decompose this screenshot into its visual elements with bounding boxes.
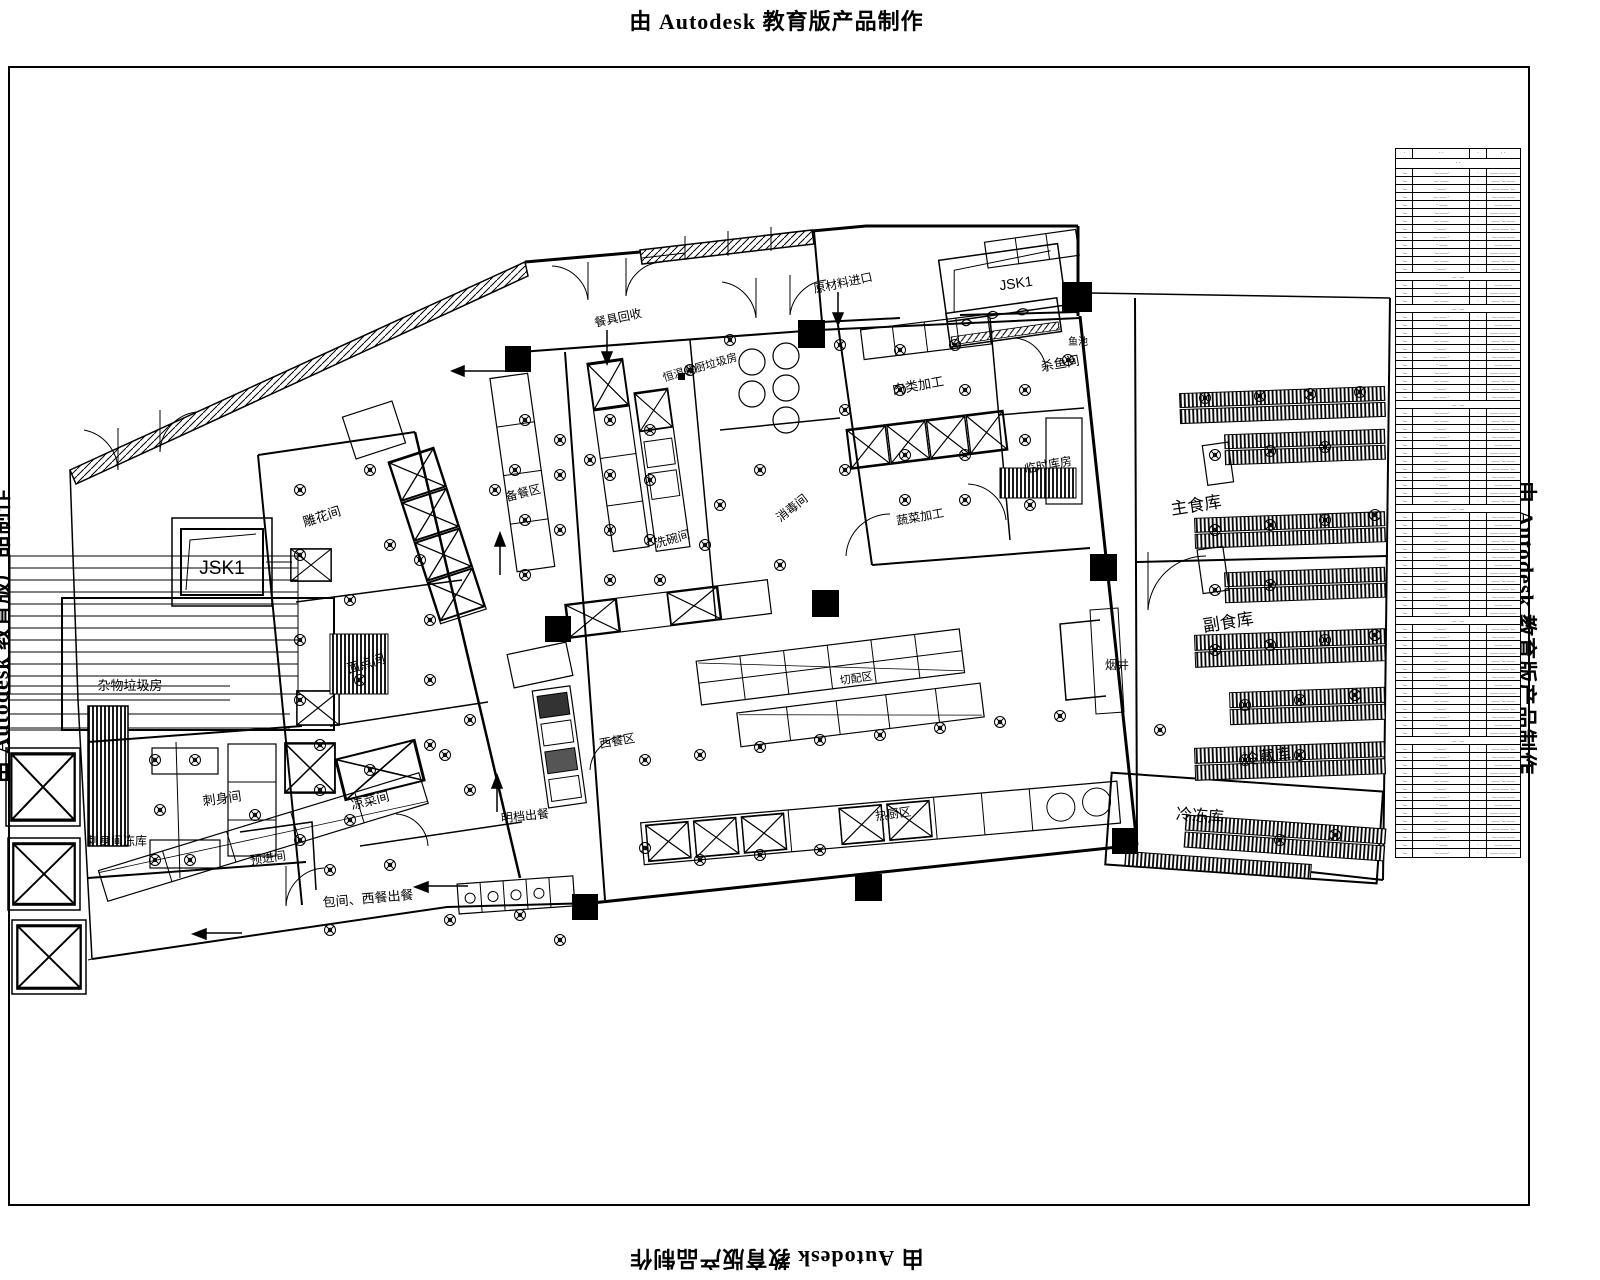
table-cell: —— —— —— xyxy=(1487,489,1520,496)
table-cell: —— —— —— xyxy=(1487,809,1520,816)
table-row: ·—·——··—— —— ·— xyxy=(1396,425,1520,433)
table-cell: —— —— ·— xyxy=(1487,545,1520,552)
table-row: ·—— ·——·—— ·— —— xyxy=(1396,577,1520,585)
table-cell: ·— xyxy=(1396,777,1413,784)
table-cell: — —— · xyxy=(1413,313,1470,320)
table-cell: ·— xyxy=(1396,481,1413,488)
table-cell: —— —— ·— xyxy=(1487,665,1520,672)
table-cell: ·— ——· xyxy=(1413,209,1470,216)
table-cell: ·— —— —— xyxy=(1487,553,1520,560)
table-cell: —— ·— —— xyxy=(1487,697,1520,704)
table-cell: — ·—— xyxy=(1413,577,1470,584)
table-cell: ·— xyxy=(1396,833,1413,840)
table-cell: —— ·— —— xyxy=(1487,217,1520,224)
table-cell: · xyxy=(1470,745,1486,752)
table-cell: — ·—— xyxy=(1413,257,1470,264)
table-row: ·—·· ——·—— —— xyxy=(1396,321,1520,329)
table-cell: ·— —— —— xyxy=(1487,233,1520,240)
table-cell: ·— xyxy=(1396,417,1413,424)
table-cell: · xyxy=(1470,225,1486,232)
table-cell: ·— ——· xyxy=(1413,249,1470,256)
table-cell: — ·—— xyxy=(1413,177,1470,184)
table-cell: —— —— —— xyxy=(1487,769,1520,776)
table-cell: ·— xyxy=(1396,353,1413,360)
table-row: ·—— —— ···— —— —— xyxy=(1396,593,1520,601)
table-row: ·—·— ——··—— —— —— xyxy=(1396,249,1520,257)
equipment-schedule-table: ·· ··· ·· ··—·— ——··—— —— ——·—— ·——·—— ·… xyxy=(1395,148,1521,858)
table-cell: —— —— ·— xyxy=(1487,825,1520,832)
table-row: ·—·· ——·—— —— xyxy=(1396,521,1520,529)
table-row: ·—— —— ···— —— —— xyxy=(1396,633,1520,641)
table-cell: —— —— xyxy=(1487,481,1520,488)
table-cell: ·— xyxy=(1396,193,1413,200)
table-cell: —— ·— —— xyxy=(1487,657,1520,664)
table-cell: · xyxy=(1470,777,1486,784)
table-row: ·—— ·——·—— ·— —— xyxy=(1396,177,1520,185)
table-cell: —— —— —— xyxy=(1487,329,1520,336)
table-row: ·—·— ——··—— —— —— xyxy=(1396,529,1520,537)
table-row: ·—·· ——·—— —— xyxy=(1396,641,1520,649)
table-cell: · xyxy=(1470,353,1486,360)
table-row: ·—·— ——··—— —— —— xyxy=(1396,649,1520,657)
table-cell: —— —— xyxy=(1487,601,1520,608)
table-cell: —— ·— —— xyxy=(1487,537,1520,544)
table-cell: ·— xyxy=(1396,337,1413,344)
table-cell: — ·—— xyxy=(1413,697,1470,704)
table-row: ·—— ·——·—— ·— —— xyxy=(1396,817,1520,825)
table-cell: · xyxy=(1470,649,1486,656)
table-cell: ·— ——· xyxy=(1413,649,1470,656)
table-cell: · xyxy=(1470,177,1486,184)
label-jsk1-left: JSK1 xyxy=(199,558,244,579)
table-cell: —— —— ·— xyxy=(1487,465,1520,472)
table-cell: —— —— —— xyxy=(1487,529,1520,536)
table-row: ·—— —— ···— —— —— xyxy=(1396,833,1520,841)
table-cell: · xyxy=(1470,817,1486,824)
table-cell: —— —— ·— xyxy=(1487,385,1520,392)
table-row: ·—·· ——·—— —— xyxy=(1396,241,1520,249)
table-cell: ·— —— —— xyxy=(1487,713,1520,720)
table-cell: ·— xyxy=(1396,625,1413,632)
table-cell: —— —— xyxy=(1487,681,1520,688)
table-row: ·—·· ——·—— —— xyxy=(1396,441,1520,449)
table-cell: · xyxy=(1470,473,1486,480)
table-cell: ·— xyxy=(1396,489,1413,496)
table-cell: — ·—— xyxy=(1413,337,1470,344)
table-cell: ·— xyxy=(1396,393,1413,400)
table-cell: · xyxy=(1470,281,1486,288)
table-cell: —— —— xyxy=(1487,281,1520,288)
table-cell: ·— —— —— xyxy=(1487,673,1520,680)
table-row: ·—— —— ···— —— —— xyxy=(1396,233,1520,241)
table-cell: ·——· xyxy=(1413,545,1470,552)
table-cell: —— —— ·— xyxy=(1487,785,1520,792)
table-cell: —— —— xyxy=(1487,241,1520,248)
table-cell: —— —— xyxy=(1487,841,1520,848)
table-cell: · xyxy=(1470,529,1486,536)
table-row: ·—— ·——·—— ·— —— xyxy=(1396,297,1520,305)
table-cell: — —— · xyxy=(1413,513,1470,520)
table-cell: —— —— ·— xyxy=(1487,745,1520,752)
table-cell: — —— · xyxy=(1413,753,1470,760)
table-cell: ·— xyxy=(1396,665,1413,672)
table-cell: · xyxy=(1470,321,1486,328)
table-cell: · xyxy=(1470,665,1486,672)
table-cell: —— —— —— xyxy=(1487,289,1520,296)
table-cell: · xyxy=(1470,681,1486,688)
table-cell: —— ·— —— xyxy=(1487,377,1520,384)
table-cell: ·· —— xyxy=(1413,641,1470,648)
room-label-yanjing: 烟井 xyxy=(1105,658,1129,672)
table-cell: —— ·— —— xyxy=(1487,417,1520,424)
table-cell: ·— xyxy=(1396,849,1413,857)
table-cell: ·— xyxy=(1396,257,1413,264)
table-cell: · xyxy=(1470,433,1486,440)
table-cell: ·— —— —— xyxy=(1487,833,1520,840)
room-label-xican: 西餐区 xyxy=(598,730,636,751)
table-cell: —— —— xyxy=(1487,521,1520,528)
table-row: ·—·——··—— —— ·— xyxy=(1396,785,1520,793)
table-row: ·—— —— ···— —— —— xyxy=(1396,513,1520,521)
table-cell: — ·—— xyxy=(1413,297,1470,304)
table-cell: —— —— ·— xyxy=(1487,585,1520,592)
table-cell: · xyxy=(1470,369,1486,376)
table-section-row: — · — xyxy=(1396,505,1520,513)
door-arcs xyxy=(84,258,1206,906)
table-cell: ·——· xyxy=(1413,185,1470,192)
table-cell: · xyxy=(1470,521,1486,528)
table-cell: ·— xyxy=(1396,449,1413,456)
table-row: ·—— ·——·—— ·— —— xyxy=(1396,457,1520,465)
table-cell: —— —— xyxy=(1487,561,1520,568)
table-cell: ·— ——· xyxy=(1413,689,1470,696)
table-cell: ·— xyxy=(1396,577,1413,584)
room-label-zawu: 杂物垃圾房 xyxy=(97,678,162,693)
table-cell: —— —— ·— xyxy=(1487,625,1520,632)
table-row: ·—·· ——·—— —— xyxy=(1396,361,1520,369)
room-label-lengdong: 冷冻库 xyxy=(1175,805,1224,826)
table-cell: · xyxy=(1470,577,1486,584)
table-row: ·—— —— ···— —— —— xyxy=(1396,793,1520,801)
room-label-beican: 备餐区 xyxy=(504,481,543,504)
table-cell: ·— xyxy=(1396,473,1413,480)
label-baojian: 包间、西餐出餐 xyxy=(322,887,414,910)
table-cell: —— ·— —— xyxy=(1487,177,1520,184)
table-cell: — —— · xyxy=(1413,473,1470,480)
table-cell: · · xyxy=(1487,149,1520,158)
table-cell: — —— · xyxy=(1413,553,1470,560)
table-row: ·—·· ——·—— —— xyxy=(1396,561,1520,569)
table-cell: — —— · xyxy=(1413,673,1470,680)
table-cell: · xyxy=(1470,537,1486,544)
table-cell: ·— —— —— xyxy=(1487,793,1520,800)
table-cell: —— —— ·— xyxy=(1487,265,1520,272)
table-cell: —— ·— —— xyxy=(1487,817,1520,824)
table-row: ·—— ·——·—— ·— —— xyxy=(1396,537,1520,545)
table-cell: ·— xyxy=(1396,521,1413,528)
table-cell: · xyxy=(1470,625,1486,632)
table-cell: ·— xyxy=(1396,593,1413,600)
table-cell: ·——· xyxy=(1413,665,1470,672)
table-cell: · xyxy=(1470,457,1486,464)
table-cell: —— —— —— xyxy=(1487,849,1520,857)
table-cell: ·——· xyxy=(1413,745,1470,752)
table-cell: ·· —— xyxy=(1413,201,1470,208)
table-cell: — ·—— xyxy=(1413,657,1470,664)
table-cell: —— —— ·— xyxy=(1487,225,1520,232)
table-cell: · xyxy=(1470,705,1486,712)
table-cell: ·— xyxy=(1396,177,1413,184)
table-row: ·—·· ——·—— —— xyxy=(1396,761,1520,769)
table-cell: ·· —— xyxy=(1413,841,1470,848)
table-row: ·—— —— ···— —— —— xyxy=(1396,193,1520,201)
table-cell: —— ·— —— xyxy=(1487,457,1520,464)
table-cell: — ·—— xyxy=(1413,377,1470,384)
table-cell: · xyxy=(1470,585,1486,592)
table-cell: — ·—— xyxy=(1413,457,1470,464)
table-cell: · xyxy=(1470,289,1486,296)
table-row: ·—— —— ···— —— —— xyxy=(1396,313,1520,321)
table-section-row: — · — xyxy=(1396,401,1520,409)
table-cell: ·· —— xyxy=(1413,761,1470,768)
table-row: ·—·— ——··—— —— —— xyxy=(1396,169,1520,177)
table-cell: · xyxy=(1470,673,1486,680)
table-cell: ·— xyxy=(1396,753,1413,760)
table-row: ·—·— ——··—— —— —— xyxy=(1396,609,1520,617)
table-cell: ·— xyxy=(1396,705,1413,712)
table-cell: · xyxy=(1470,313,1486,320)
table-cell: ·· —— xyxy=(1413,361,1470,368)
table-cell: ·— —— —— xyxy=(1487,473,1520,480)
table-row: ·—— ·——·—— ·— —— xyxy=(1396,337,1520,345)
table-cell: · xyxy=(1470,721,1486,728)
table-cell: —— —— xyxy=(1487,801,1520,808)
table-row: ·—— ·——·—— ·— —— xyxy=(1396,697,1520,705)
table-cell: — ·—— xyxy=(1413,217,1470,224)
table-cell: ·— xyxy=(1396,457,1413,464)
table-row: ·—·——··—— —— ·— xyxy=(1396,465,1520,473)
table-cell: · xyxy=(1470,417,1486,424)
table-cell: —— —— ·— xyxy=(1487,185,1520,192)
table-row: ·—— ·——·—— ·— —— xyxy=(1396,217,1520,225)
table-row: ·—·— ——··—— —— —— xyxy=(1396,849,1520,857)
table-cell: —— —— —— xyxy=(1487,689,1520,696)
table-cell: ·— xyxy=(1396,321,1413,328)
table-cell: ·— xyxy=(1396,313,1413,320)
table-row: ·—·· ——·—— —— xyxy=(1396,481,1520,489)
table-cell: —— —— —— xyxy=(1487,209,1520,216)
room-label-shucai: 蔬菜加工 xyxy=(895,506,945,528)
table-cell: — —— · xyxy=(1413,793,1470,800)
table-cell: · xyxy=(1470,465,1486,472)
table-cell: ·——· xyxy=(1413,465,1470,472)
table-cell: — —— · xyxy=(1413,833,1470,840)
table-cell: —— ·— —— xyxy=(1487,497,1520,504)
table-cell: · xyxy=(1470,785,1486,792)
table-cell: · xyxy=(1470,561,1486,568)
table-cell: ·— xyxy=(1396,329,1413,336)
table-cell: ·——· xyxy=(1413,785,1470,792)
table-row: ·—·— ——··—— —— —— xyxy=(1396,689,1520,697)
table-cell: · xyxy=(1470,257,1486,264)
table-cell: ·· —— xyxy=(1413,241,1470,248)
table-cell: — ·—— xyxy=(1413,777,1470,784)
table-row: ·—·——··—— —— ·— xyxy=(1396,185,1520,193)
table-cell: · xyxy=(1470,393,1486,400)
table-cell: ·— ——· xyxy=(1413,409,1470,416)
table-cell: · xyxy=(1470,753,1486,760)
table-row: ·—·——··—— —— ·— xyxy=(1396,665,1520,673)
table-cell: ·· —— xyxy=(1413,601,1470,608)
table-cell: · xyxy=(1470,489,1486,496)
table-cell: ·— —— —— xyxy=(1487,393,1520,400)
table-cell: · xyxy=(1470,729,1486,736)
table-cell: —— ·— —— xyxy=(1487,777,1520,784)
table-cell: · xyxy=(1470,377,1486,384)
table-cell: —— —— xyxy=(1487,641,1520,648)
table-row: ·—— —— ···— —— —— xyxy=(1396,713,1520,721)
label-mingdang: 明档出餐 xyxy=(500,806,549,826)
table-cell: ·— xyxy=(1396,841,1413,848)
table-row: ·—·——··—— —— ·— xyxy=(1396,585,1520,593)
table-cell: · xyxy=(1470,809,1486,816)
room-label-cishen: 刺身间 xyxy=(202,788,243,808)
table-row: ·—·— ——··—— —— —— xyxy=(1396,369,1520,377)
table-cell: —— —— —— xyxy=(1487,249,1520,256)
table-row: ·—·— ——··—— —— —— xyxy=(1396,409,1520,417)
table-cell: ·— xyxy=(1396,513,1413,520)
table-cell: — —— · xyxy=(1413,393,1470,400)
table-cell: ·— xyxy=(1396,721,1413,728)
table-cell: ·— xyxy=(1396,793,1413,800)
table-cell: ·— xyxy=(1396,817,1413,824)
table-cell: ·— xyxy=(1396,585,1413,592)
table-cell: —— —— —— xyxy=(1487,569,1520,576)
table-row: ·—·——··—— —— ·— xyxy=(1396,705,1520,713)
table-cell: —— ·— —— xyxy=(1487,297,1520,304)
room-label-rechu: 热厨区 xyxy=(874,805,912,824)
room-label-fushi: 副食库 xyxy=(1202,609,1255,636)
table-cell: · xyxy=(1470,241,1486,248)
table-cell: ·· —— xyxy=(1413,721,1470,728)
table-cell: ·— ——· xyxy=(1413,769,1470,776)
table-cell: ·— xyxy=(1396,689,1413,696)
table-cell: · xyxy=(1470,697,1486,704)
table-row: ·—— ·——·—— ·— —— xyxy=(1396,657,1520,665)
table-cell: · xyxy=(1396,149,1413,158)
table-cell: ·— —— —— xyxy=(1487,353,1520,360)
table-cell: ·— xyxy=(1396,657,1413,664)
table-cell: —— —— xyxy=(1487,761,1520,768)
table-cell: · xyxy=(1470,249,1486,256)
table-row: ·—·· ——·—— —— xyxy=(1396,201,1520,209)
table-cell: · xyxy=(1470,385,1486,392)
table-cell: — —— · xyxy=(1413,233,1470,240)
room-label-zhushi: 主食库 xyxy=(1169,492,1222,519)
table-cell: ·— —— —— xyxy=(1487,513,1520,520)
table-cell: · xyxy=(1470,593,1486,600)
table-cell: ·· —— xyxy=(1413,681,1470,688)
table-cell: ·— xyxy=(1396,561,1413,568)
table-cell: ·— xyxy=(1396,201,1413,208)
table-row: ·—— ·——·—— ·— —— xyxy=(1396,257,1520,265)
floor-plan: 雕花间 面点间 杂物垃圾房 刺身间 刺身间冻库 预进间 凉菜间 洗碗间 备餐区 … xyxy=(0,0,1600,1280)
table-cell: — —— · xyxy=(1413,433,1470,440)
table-cell: · xyxy=(1470,361,1486,368)
table-row: ·—·——··—— —— ·— xyxy=(1396,745,1520,753)
table-cell: ·— ——· xyxy=(1413,729,1470,736)
table-cell: ·— xyxy=(1396,345,1413,352)
room-label-roulei: 肉类加工 xyxy=(891,374,945,398)
table-cell: ·— ——· xyxy=(1413,169,1470,176)
room-label-diaohua: 雕花间 xyxy=(301,503,343,529)
table-cell: ·——· xyxy=(1413,265,1470,272)
label-yuanliao: 原材料进口 xyxy=(812,270,874,296)
table-cell: · xyxy=(1470,841,1486,848)
table-cell: · xyxy=(1470,481,1486,488)
table-cell: —— —— xyxy=(1487,361,1520,368)
table-row: ·—·· ——·—— —— xyxy=(1396,721,1520,729)
table-cell: · xyxy=(1470,209,1486,216)
table-row: ·—·——··—— —— ·— xyxy=(1396,265,1520,273)
table-row: ·—·— ——··—— —— —— xyxy=(1396,569,1520,577)
table-cell: · xyxy=(1470,849,1486,857)
table-cell: ·— xyxy=(1396,713,1413,720)
table-row: ·—— —— ···— —— —— xyxy=(1396,673,1520,681)
table-cell: · xyxy=(1470,713,1486,720)
table-cell: ·— ——· xyxy=(1413,849,1470,857)
room-label-xiaodu: 消毒间 xyxy=(774,491,811,524)
table-cell: ·— xyxy=(1396,609,1413,616)
table-cell: ·· —— xyxy=(1413,441,1470,448)
table-cell: ·— xyxy=(1396,369,1413,376)
table-row: ·—— —— ···— —— —— xyxy=(1396,473,1520,481)
table-cell: ·— xyxy=(1396,249,1413,256)
table-row: ·—— —— ···— —— —— xyxy=(1396,393,1520,401)
table-section-row: — · — xyxy=(1396,737,1520,745)
table-cell: — ·—— xyxy=(1413,417,1470,424)
table-cell: · xyxy=(1470,449,1486,456)
table-section-row: — · — xyxy=(1396,305,1520,313)
table-cell: ·——· xyxy=(1413,425,1470,432)
table-cell: · xyxy=(1470,497,1486,504)
table-cell: ·— xyxy=(1396,673,1413,680)
table-cell: ·— xyxy=(1396,265,1413,272)
table-row: ·—·——··—— —— ·— xyxy=(1396,345,1520,353)
table-row: ·—·— ——··—— —— —— xyxy=(1396,329,1520,337)
table-section-row: — · — xyxy=(1396,617,1520,625)
table-cell: ·——· xyxy=(1413,825,1470,832)
table-cell: ·— xyxy=(1396,425,1413,432)
table-row: ·—·— ——··—— —— —— xyxy=(1396,489,1520,497)
table-cell: ·— xyxy=(1396,697,1413,704)
table-section-row: — · — xyxy=(1396,273,1520,281)
table-cell: ·— xyxy=(1396,553,1413,560)
table-cell: ·— xyxy=(1396,281,1413,288)
table-cell: ·——· xyxy=(1413,385,1470,392)
table-cell: ·— ——· xyxy=(1413,569,1470,576)
table-cell: ·——· xyxy=(1413,705,1470,712)
table-cell: ·— xyxy=(1396,529,1413,536)
table-row: ·—·——··—— —— ·— xyxy=(1396,225,1520,233)
shelf-racks xyxy=(1125,386,1386,878)
table-cell: — ·—— xyxy=(1413,817,1470,824)
table-cell: · xyxy=(1470,297,1486,304)
table-cell: · xyxy=(1470,545,1486,552)
elevator-shafts xyxy=(6,706,128,994)
table-cell: ·— xyxy=(1396,569,1413,576)
table-cell: —— —— xyxy=(1487,201,1520,208)
